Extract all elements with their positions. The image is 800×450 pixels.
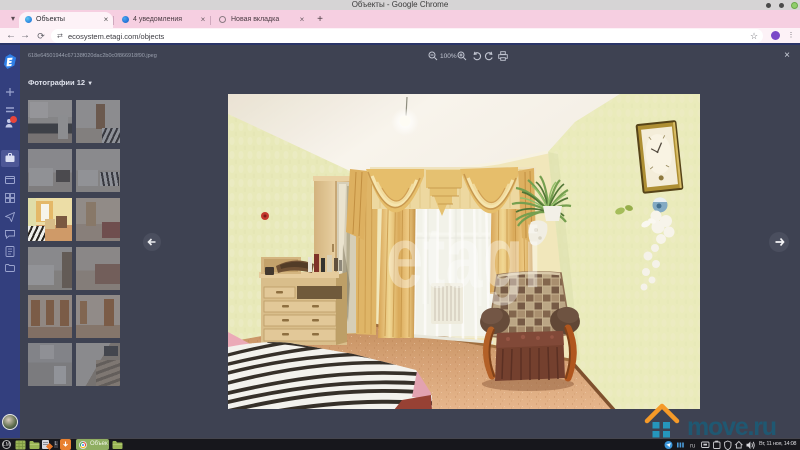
svg-text:etagi: etagi [386, 210, 542, 306]
svg-text:ru: ru [690, 444, 695, 450]
